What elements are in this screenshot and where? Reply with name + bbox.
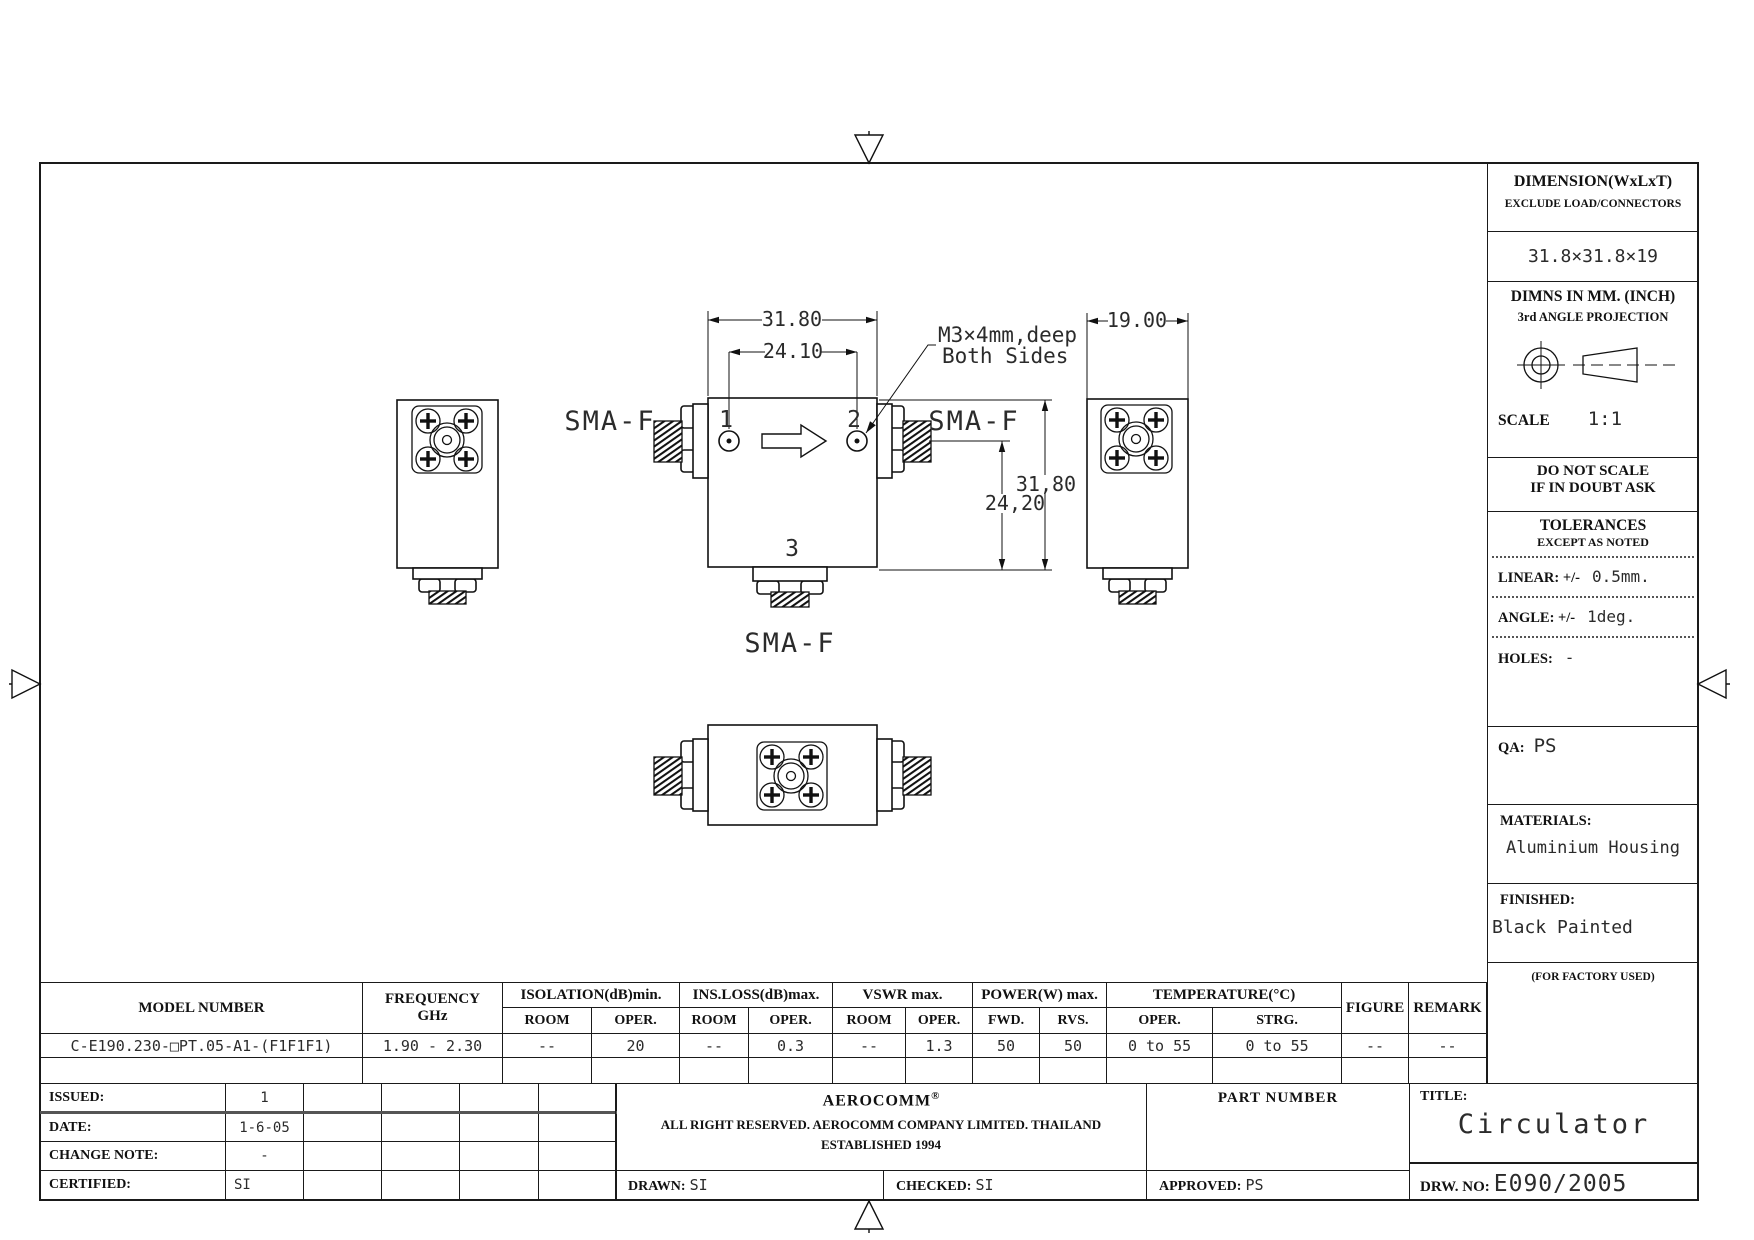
- materials-value: Aluminium Housing: [1488, 838, 1698, 858]
- third-angle-projection-icon: [1503, 329, 1683, 401]
- drawing-title: Circulator: [1410, 1109, 1698, 1140]
- tolerances-section: TOLERANCES EXCEPT AS NOTED LINEAR: +/- 0…: [1488, 517, 1698, 727]
- cell: --: [680, 1034, 749, 1058]
- issued-label: ISSUED:: [41, 1084, 226, 1113]
- linear-value: 0.5mm.: [1592, 567, 1650, 586]
- finished-section: FINISHED: Black Painted: [1488, 884, 1698, 963]
- dimension-value-section: 31.8×31.8×19: [1488, 232, 1698, 282]
- title-panel: DIMENSION(WxLxT) EXCLUDE LOAD/CONNECTORS…: [1487, 163, 1698, 1083]
- sub-header: ROOM: [833, 1008, 906, 1034]
- drw-no-value: E090/2005: [1494, 1171, 1628, 1197]
- sma-label-left: SMA-F: [564, 406, 655, 437]
- cell: --: [833, 1034, 906, 1058]
- centering-mark-right: [1698, 670, 1730, 698]
- registered-mark: ®: [931, 1090, 939, 1102]
- sub-header: OPER.: [1107, 1008, 1213, 1034]
- port-1-label: 1: [719, 407, 733, 433]
- checked-value: SI: [975, 1176, 993, 1194]
- group-header-vswr: VSWR max.: [833, 983, 973, 1008]
- sub-header: ROOM: [503, 1008, 592, 1034]
- sma-label-bottom: SMA-F: [744, 628, 835, 659]
- approved-label: APPROVED:: [1159, 1179, 1241, 1194]
- linear-label: LINEAR: +/-: [1498, 570, 1580, 586]
- qa-label: QA:: [1498, 740, 1525, 756]
- units-line: DIMNS IN MM. (INCH): [1488, 288, 1698, 306]
- approved-value: PS: [1245, 1176, 1263, 1194]
- checked-label: CHECKED:: [896, 1179, 971, 1194]
- sub-header: ROOM: [680, 1008, 749, 1034]
- dim-depth: 19.00: [1107, 308, 1167, 332]
- change-note-label: CHANGE NOTE:: [41, 1142, 226, 1171]
- group-header-power: POWER(W) max.: [973, 983, 1107, 1008]
- cell: 0.3: [749, 1034, 833, 1058]
- warning-section: DO NOT SCALE IF IN DOUBT ASK: [1488, 458, 1698, 512]
- title-label: TITLE:: [1410, 1084, 1698, 1105]
- materials-section: MATERIALS: Aluminium Housing: [1488, 805, 1698, 884]
- centering-mark-bottom: [855, 1200, 883, 1233]
- cell: 50: [1040, 1034, 1107, 1058]
- front-right-connector: [877, 404, 931, 478]
- factory-note: (FOR FACTORY USED): [1488, 963, 1698, 983]
- drw-no-box: DRW. NO: E090/2005: [1409, 1163, 1699, 1200]
- cell: 20: [592, 1034, 680, 1058]
- company-box: AEROCOMM® ALL RIGHT RESERVED. AEROCOMM C…: [615, 1083, 1147, 1171]
- cell: 0 to 55: [1107, 1034, 1213, 1058]
- cell: --: [503, 1034, 592, 1058]
- materials-label: MATERIALS:: [1488, 805, 1698, 830]
- dimension-note: EXCLUDE LOAD/CONNECTORS: [1488, 198, 1698, 210]
- bottom-view-left-connector: [654, 739, 708, 811]
- drawn-box: DRAWN: SI: [615, 1170, 884, 1200]
- spec-table: MODEL NUMBER FREQUENCYGHz ISOLATION(dB)m…: [40, 982, 1487, 1084]
- bottom-view: [654, 725, 931, 825]
- group-header-insloss: INS.LOSS(dB)max.: [680, 983, 833, 1008]
- checked-box: CHECKED: SI: [883, 1170, 1147, 1200]
- m3-note-line2: Both Sides: [942, 344, 1068, 368]
- cell: --: [1342, 1034, 1409, 1058]
- angle-value: 1deg.: [1587, 607, 1635, 626]
- finished-value: Black Painted: [1488, 917, 1698, 938]
- centering-mark-top: [855, 131, 883, 163]
- spec-data-row: C-E190.230-□PT.05-A1-(F1F1F1) 1.90 - 2.3…: [41, 1034, 1487, 1058]
- col-header-frequency: FREQUENCYGHz: [363, 983, 503, 1034]
- dim-hole-spacing: 24.10: [763, 339, 823, 363]
- sub-header: OPER.: [749, 1008, 833, 1034]
- cell: 1.3: [906, 1034, 973, 1058]
- part-number-box: PART NUMBER: [1146, 1083, 1410, 1171]
- projection-line: 3rd ANGLE PROJECTION: [1488, 310, 1698, 325]
- finished-label: FINISHED:: [1488, 884, 1698, 909]
- part-number-label: PART NUMBER: [1147, 1090, 1409, 1107]
- qa-value: PS: [1534, 735, 1557, 757]
- tolerances-title: TOLERANCES: [1488, 517, 1698, 535]
- holes-label: HOLES:: [1498, 651, 1553, 667]
- sub-header: FWD.: [973, 1008, 1040, 1034]
- company-name: AEROCOMM: [823, 1092, 931, 1109]
- cell-frequency: 1.90 - 2.30: [363, 1034, 503, 1058]
- dim-hole-to-bottom: 24,20: [985, 491, 1045, 515]
- col-header-remark: REMARK: [1409, 983, 1487, 1034]
- company-line2: ESTABLISHED 1994: [616, 1137, 1146, 1153]
- certified-label: CERTIFIED:: [41, 1171, 226, 1200]
- front-view: [654, 398, 931, 607]
- revision-table: ISSUED: 1 DATE: 1-6-05 CHANGE NOTE: - CE…: [40, 1083, 617, 1200]
- company-line1: ALL RIGHT RESERVED. AEROCOMM COMPANY LIM…: [616, 1117, 1146, 1133]
- cell: 0 to 55: [1213, 1034, 1342, 1058]
- port-2-label: 2: [847, 407, 861, 433]
- angle-label: ANGLE: +/-: [1498, 610, 1575, 626]
- group-header-isolation: ISOLATION(dB)min.: [503, 983, 680, 1008]
- warning-line1: DO NOT SCALE: [1488, 463, 1698, 480]
- left-side-view: [397, 400, 498, 604]
- warning-line2: IF IN DOUBT ASK: [1488, 480, 1698, 497]
- dim-body-width: 31.80: [762, 307, 822, 331]
- change-note-value: -: [226, 1142, 304, 1171]
- right-view-bottom-connector: [1103, 568, 1172, 604]
- sub-header: STRG.: [1213, 1008, 1342, 1034]
- cell: --: [1409, 1034, 1487, 1058]
- front-left-connector: [654, 404, 708, 478]
- col-header-model: MODEL NUMBER: [41, 983, 363, 1034]
- qa-section: QA: PS: [1488, 727, 1698, 805]
- drawn-label: DRAWN:: [628, 1179, 686, 1194]
- dimension-label: DIMENSION(WxLxT): [1488, 173, 1698, 191]
- holes-value: -: [1565, 648, 1575, 667]
- factory-section: (FOR FACTORY USED): [1488, 963, 1698, 1094]
- col-header-figure: FIGURE: [1342, 983, 1409, 1034]
- sub-header: OPER.: [592, 1008, 680, 1034]
- drw-no-label: DRW. NO:: [1420, 1179, 1490, 1195]
- left-view-bottom-connector: [413, 568, 482, 604]
- bottom-view-right-connector: [877, 739, 931, 811]
- issued-value: 1: [226, 1084, 304, 1113]
- scale-value: 1:1: [1588, 408, 1622, 430]
- certified-value: SI: [226, 1171, 304, 1200]
- title-box: TITLE: Circulator: [1409, 1083, 1699, 1163]
- front-bottom-connector: [753, 567, 827, 607]
- projection-section: DIMNS IN MM. (INCH) 3rd ANGLE PROJECTION…: [1488, 288, 1698, 458]
- group-header-temperature: TEMPERATURE(°C): [1107, 983, 1342, 1008]
- drawing-sheet: 31.80 24.10 19.00 31,80 24,20 M3×4mm,dee…: [0, 0, 1754, 1240]
- cell-model: C-E190.230-□PT.05-A1-(F1F1F1): [41, 1034, 363, 1058]
- right-side-view: [1087, 399, 1188, 604]
- sub-header: RVS.: [1040, 1008, 1107, 1034]
- port-3-label: 3: [785, 536, 799, 562]
- scale-label: SCALE: [1498, 412, 1550, 429]
- tolerances-sub: EXCEPT AS NOTED: [1488, 535, 1698, 550]
- sub-header: OPER.: [906, 1008, 973, 1034]
- cell: 50: [973, 1034, 1040, 1058]
- spec-empty-row: [41, 1058, 1487, 1084]
- sma-label-right: SMA-F: [928, 406, 1019, 437]
- date-value: 1-6-05: [226, 1113, 304, 1142]
- dimension-section: DIMENSION(WxLxT) EXCLUDE LOAD/CONNECTORS: [1488, 163, 1698, 232]
- drawn-value: SI: [690, 1176, 708, 1194]
- centering-mark-left: [9, 670, 40, 698]
- approved-box: APPROVED: PS: [1146, 1170, 1410, 1200]
- dimension-value: 31.8×31.8×19: [1528, 246, 1658, 267]
- date-label: DATE:: [41, 1113, 226, 1142]
